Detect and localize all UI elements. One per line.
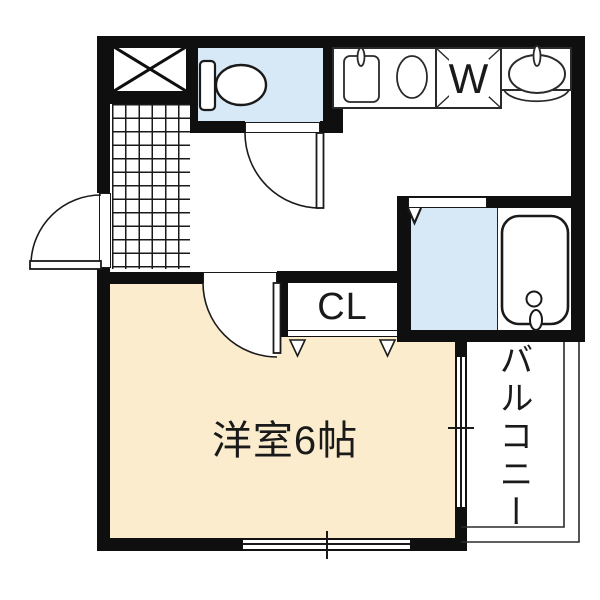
bathtub-deck (497, 208, 571, 330)
wall-left-lower (97, 268, 110, 551)
room-bottom-window (243, 538, 410, 551)
toilet-door-opening (245, 122, 320, 133)
room-door-opening (203, 272, 277, 284)
washbasin-icon (501, 46, 571, 101)
wall-room-bottom-left (97, 538, 243, 551)
wall-room-right-lower (455, 507, 467, 551)
floor-plan: 洋室6帖 CL W バルコニー (0, 0, 600, 600)
toilet-door-icon (245, 133, 324, 208)
balcony-label: バルコニー (492, 342, 534, 557)
wall-left-upper (97, 36, 110, 193)
western-room-label: 洋室6帖 (150, 416, 420, 466)
entrance-tile-floor (112, 104, 190, 269)
closet-label: CL (288, 283, 397, 330)
balcony-window (455, 357, 467, 507)
toilet-room-floor (198, 48, 323, 122)
bathroom-door-opening (408, 197, 487, 208)
shaft-box (110, 43, 190, 95)
wall-toilet-bottom-right (320, 121, 343, 133)
wall-shaft-bottom (110, 95, 190, 104)
kitchen-sink-icon (344, 48, 379, 102)
wall-toilet-bottom-left (190, 121, 245, 133)
wall-room-top-left (97, 272, 203, 284)
wall-right (571, 36, 585, 342)
wall-toilet-right (323, 36, 343, 133)
wall-toilet-left (190, 43, 198, 133)
wall-closet-top (277, 271, 397, 283)
closet-front-track (288, 330, 397, 337)
wall-washroom-left (397, 196, 411, 342)
washing-machine-label: W (436, 52, 501, 106)
wall-room-right-upper (455, 342, 467, 357)
burner-icon (397, 56, 427, 98)
wall-bathroom-bottom (397, 330, 585, 342)
entrance-door-icon (30, 195, 101, 269)
entrance-opening (99, 193, 111, 268)
